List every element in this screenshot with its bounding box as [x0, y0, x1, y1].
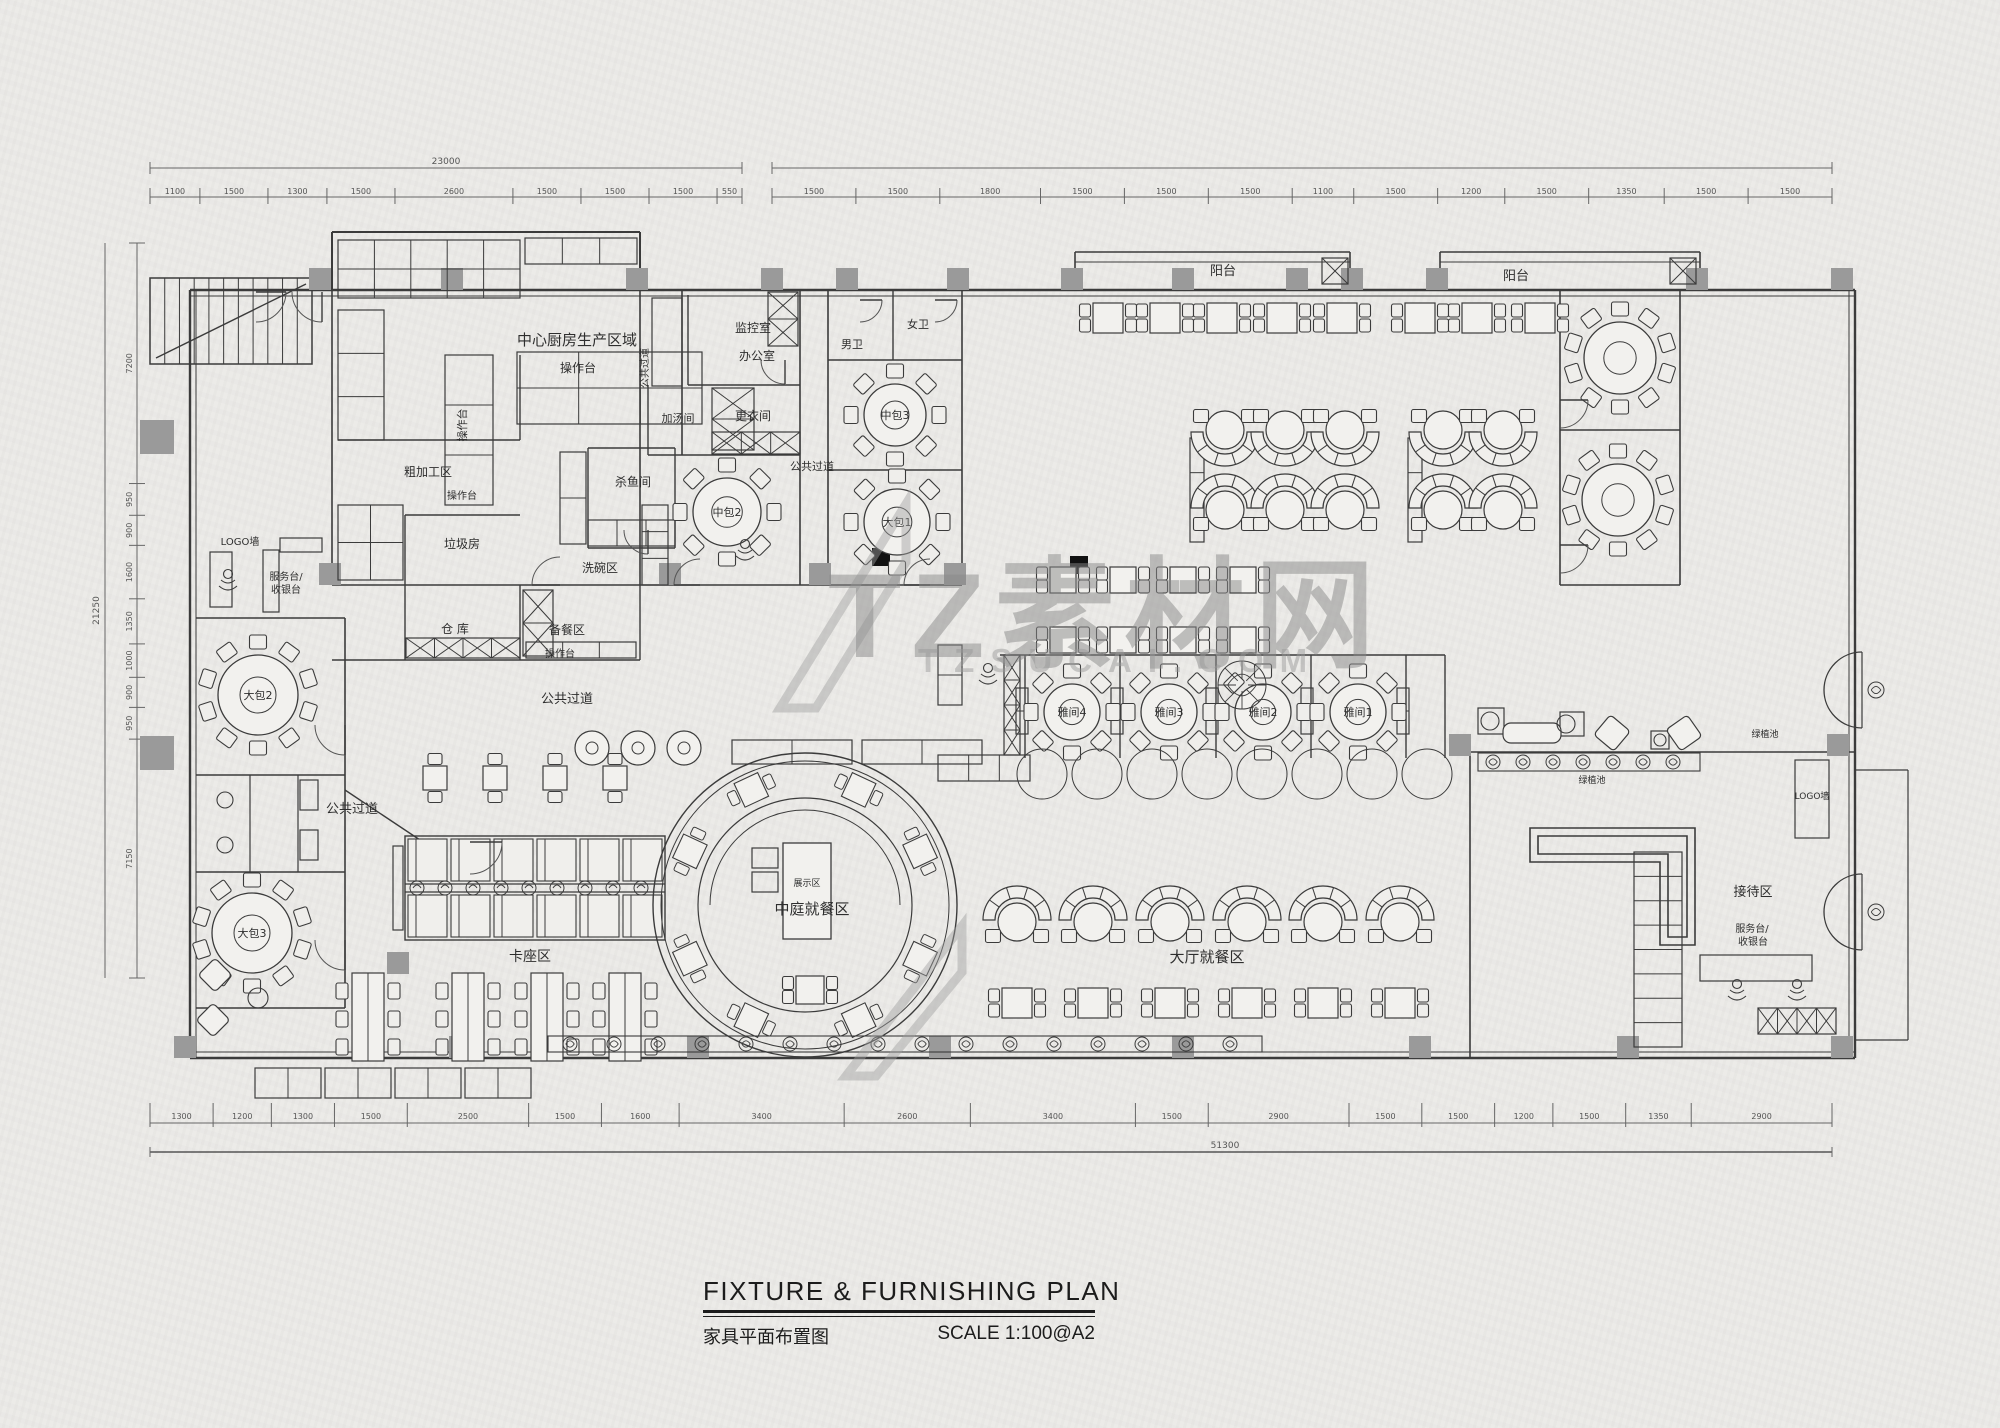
room-label: 1500 [605, 187, 625, 196]
two-seat-table [483, 754, 507, 803]
door-swing [761, 360, 785, 384]
round-table: 雅间3 [1121, 664, 1217, 760]
six-seat-table [593, 973, 657, 1061]
room-label: 23000 [432, 157, 461, 167]
two-seat-table [543, 754, 567, 803]
booth-table [1366, 886, 1434, 943]
room-label: 7200 [125, 353, 134, 373]
room-label: 21250 [92, 596, 102, 625]
door-swing [315, 940, 345, 970]
two-seat-table [423, 754, 447, 803]
booth-table [1409, 474, 1477, 531]
room-label: 公共过道 [790, 459, 834, 473]
door-swing [860, 300, 882, 322]
six-seat-table [436, 973, 500, 1061]
room-label: 1500 [673, 187, 693, 196]
plan-title-en: FIXTURE & FURNISHING PLAN [703, 1276, 1095, 1307]
room-label: 备餐区 [549, 622, 585, 637]
booth-table [1213, 886, 1281, 943]
room-label: 大厅就餐区 [1169, 948, 1244, 966]
room-label: 1500 [361, 1112, 381, 1121]
room-label: 1500 [1696, 187, 1716, 196]
booth-table [983, 886, 1051, 943]
room-label: 1350 [125, 611, 134, 631]
watermark-logo-mark [780, 504, 906, 708]
door-swing [315, 725, 345, 755]
room-label: 1600 [125, 562, 134, 582]
room-label: 1000 [125, 650, 134, 670]
room-label: 900 [125, 523, 134, 538]
round-table: 雅间2 [1215, 664, 1311, 760]
square-table [1392, 303, 1449, 333]
room-label: 1500 [1579, 1112, 1599, 1121]
room-label: 监控室 [735, 320, 771, 335]
booth-table [1191, 410, 1259, 467]
square-table [1137, 303, 1194, 333]
room-label: 2900 [1268, 1112, 1288, 1121]
room-label: 收银台 [271, 583, 301, 596]
booth-table [1059, 886, 1127, 943]
room-label: 1500 [1375, 1112, 1395, 1121]
room-label: 1200 [1461, 187, 1481, 196]
room-label: 公共过道 [541, 692, 593, 707]
room-label: 1500 [1240, 187, 1260, 196]
booth-table [1251, 474, 1319, 531]
square-table [1097, 627, 1150, 653]
room-label: 服务台/ [269, 570, 303, 583]
room-label: 1500 [1162, 1112, 1182, 1121]
booth-table [1251, 410, 1319, 467]
room-label: 大包2 [244, 688, 273, 702]
room-label: 公共过道 [638, 348, 651, 388]
square-table [1254, 303, 1311, 333]
room-label: 950 [125, 492, 134, 507]
room-label: 1600 [630, 1112, 650, 1121]
square-table [989, 988, 1046, 1018]
room-label: 卡座区 [509, 949, 551, 965]
room-label: LOGO墙 [1795, 790, 1830, 802]
room-label: 绿植池 [1578, 774, 1605, 786]
door-swing [532, 557, 560, 585]
room-label: 550 [722, 187, 737, 196]
room-label: 女卫 [907, 317, 929, 331]
booth-table [1469, 474, 1537, 531]
room-label: 1500 [804, 187, 824, 196]
square-table [1065, 988, 1122, 1018]
room-label: 1500 [224, 187, 244, 196]
square-table [1142, 988, 1199, 1018]
square-table [1217, 567, 1270, 593]
round-table: 中包3 [844, 364, 946, 466]
room-label: 阳台 [1210, 264, 1236, 279]
title-underline [703, 1310, 1095, 1317]
round-table [1564, 302, 1676, 414]
round-table: 大包2 [198, 635, 317, 755]
square-table [1097, 567, 1150, 593]
floor-plan-canvas: 2300011001500130015002600150015001500550… [0, 0, 2000, 1428]
room-label: 7150 [125, 848, 134, 868]
round-table: 雅间1 [1310, 664, 1406, 760]
round-table: 中包2 [673, 458, 781, 566]
person-icon [1728, 980, 1746, 1001]
room-label: 1100 [1313, 187, 1333, 196]
booth-table [1311, 474, 1379, 531]
room-label: 阳台 [1503, 269, 1529, 284]
two-seat-table [603, 754, 627, 803]
square-table [1219, 988, 1276, 1018]
room-label: 1500 [888, 187, 908, 196]
square-table [1194, 303, 1251, 333]
room-label: 1500 [1448, 1112, 1468, 1121]
round-table: 雅间4 [1024, 664, 1120, 760]
room-label: 服务台/ [1735, 922, 1769, 935]
room-label: 2600 [897, 1112, 917, 1121]
square-table [1037, 567, 1090, 593]
room-label: 接待区 [1733, 884, 1772, 900]
room-label: 1200 [1514, 1112, 1534, 1121]
room-label: 公共过道 [326, 802, 378, 817]
booth-table [1191, 474, 1259, 531]
person-icon [979, 664, 997, 685]
room-label: 更衣间 [735, 408, 771, 423]
room-label: 男卫 [841, 338, 863, 351]
room-label: 2600 [444, 187, 464, 196]
room-label: 1350 [1616, 187, 1636, 196]
room-label: 仓 库 [441, 621, 469, 636]
room-label: 1350 [1648, 1112, 1668, 1121]
door-swing [1560, 400, 1588, 428]
furniture: 大包2大包3中包2中包3大包1雅间4雅间3雅间2雅间1 [192, 302, 1676, 1061]
room-label: 1500 [1072, 187, 1092, 196]
square-table [1449, 303, 1506, 333]
square-table [783, 976, 838, 1004]
room-label: 办公室 [739, 348, 775, 363]
room-label: 950 [125, 716, 134, 731]
room-label: 2500 [458, 1112, 478, 1121]
room-label: 1500 [351, 187, 371, 196]
room-label: 1300 [287, 187, 307, 196]
room-label: 中心厨房生产区域 [517, 331, 637, 349]
plan-title-cn: 家具平面布置图 [703, 1323, 829, 1349]
square-table [1372, 988, 1429, 1018]
six-seat-table [336, 973, 400, 1061]
booth-block [393, 836, 665, 940]
room-label: 3400 [751, 1112, 771, 1121]
room-label: 雅间3 [1155, 705, 1184, 719]
round-table [1562, 444, 1674, 556]
room-label: 2900 [1751, 1112, 1771, 1121]
door-swing [1560, 545, 1588, 573]
booth-table [1409, 410, 1477, 467]
room-label: 操作台 [545, 647, 575, 660]
room-label: 操作台 [560, 360, 596, 375]
room-label: 收银台 [1738, 935, 1768, 948]
booth-table [1136, 886, 1204, 943]
room-label: 洗碗区 [582, 560, 618, 575]
room-label: 展示区 [793, 878, 820, 889]
room-label: 雅间2 [1249, 705, 1278, 719]
square-table [1080, 303, 1137, 333]
room-label: 1300 [293, 1112, 313, 1121]
room-label: 中包2 [713, 506, 742, 519]
square-table [1037, 627, 1090, 653]
six-seat-table [515, 973, 579, 1061]
square-table [1217, 627, 1270, 653]
room-label: 1200 [232, 1112, 252, 1121]
room-label: 900 [125, 685, 134, 700]
room-label: 操作台 [447, 489, 477, 502]
room-label: 粗加工区 [404, 465, 452, 479]
room-label: 1500 [1537, 187, 1557, 196]
room-label: 1500 [537, 187, 557, 196]
room-label: 1500 [555, 1112, 575, 1121]
room-label: 中包3 [881, 409, 910, 422]
door-swing [935, 300, 957, 322]
floor-plan-page: 2300011001500130015002600150015001500550… [0, 0, 2000, 1428]
square-table [1314, 303, 1371, 333]
booth-table [1311, 410, 1379, 467]
room-label: 雅间4 [1058, 705, 1087, 719]
room-label: 垃圾房 [444, 536, 480, 551]
room-label: 51300 [1211, 1141, 1240, 1151]
title-block: FIXTURE & FURNISHING PLAN 家具平面布置图 SCALE … [703, 1276, 1095, 1349]
room-label: LOGO墙 [221, 535, 260, 548]
room-label: 1300 [171, 1112, 191, 1121]
booth-table [1289, 886, 1357, 943]
plan-scale-label: SCALE 1:100@A2 [937, 1323, 1095, 1349]
person-icon [219, 570, 237, 591]
title-subrow: 家具平面布置图 SCALE 1:100@A2 [703, 1323, 1095, 1349]
room-label: 大包3 [238, 926, 267, 940]
room-label: 绿植池 [1751, 728, 1778, 740]
room-label: 杀鱼间 [615, 474, 651, 489]
room-label: 中庭就餐区 [774, 900, 849, 918]
person-icon [1788, 980, 1806, 1001]
door-swing [624, 530, 648, 554]
room-label: 3400 [1043, 1112, 1063, 1121]
room-label: 雅间1 [1344, 705, 1373, 719]
square-table [1295, 988, 1352, 1018]
room-label: 加汤间 [662, 411, 695, 425]
booth-table [1469, 410, 1537, 467]
room-label: 1100 [165, 187, 185, 196]
room-label: 1800 [980, 187, 1000, 196]
room-label: 1500 [1780, 187, 1800, 196]
square-table [1157, 627, 1210, 653]
room-label: 1500 [1156, 187, 1176, 196]
room-label: 操作台 [455, 409, 469, 442]
square-table [1157, 567, 1210, 593]
room-label: 1500 [1386, 187, 1406, 196]
